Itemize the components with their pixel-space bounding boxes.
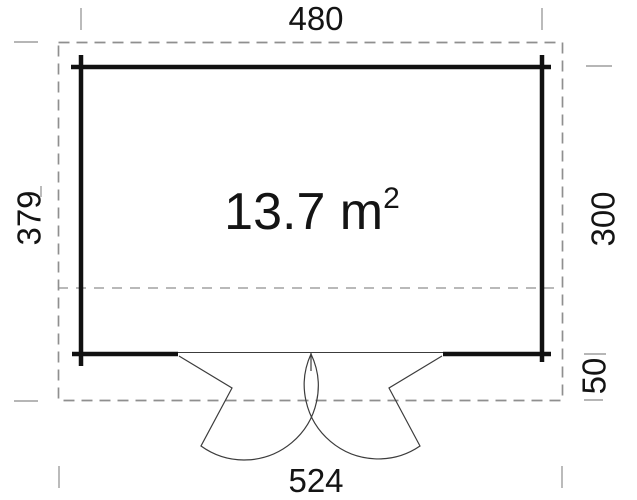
- doors-group: [178, 353, 443, 460]
- right-door-leaf-and-arc: [304, 354, 442, 459]
- floor-plan: 480 524 379 300 50 13.7 m2: [0, 0, 637, 500]
- dim-top-label: 480: [288, 0, 343, 37]
- area-label: 13.7 m2: [224, 182, 400, 241]
- area-label-superscript: 2: [383, 182, 400, 215]
- dim-bottom-label: 524: [288, 462, 343, 499]
- dim-left-label: 379: [11, 190, 48, 245]
- area-label-value: 13.7 m: [224, 183, 383, 241]
- floor-plan-drawing: 480 524 379 300 50 13.7 m2: [0, 0, 637, 500]
- dim-right-lower-label: 50: [576, 358, 613, 395]
- dim-right-upper-label: 300: [585, 191, 622, 246]
- left-door-leaf-and-arc: [179, 354, 318, 460]
- dim-ticks-group: [14, 8, 612, 488]
